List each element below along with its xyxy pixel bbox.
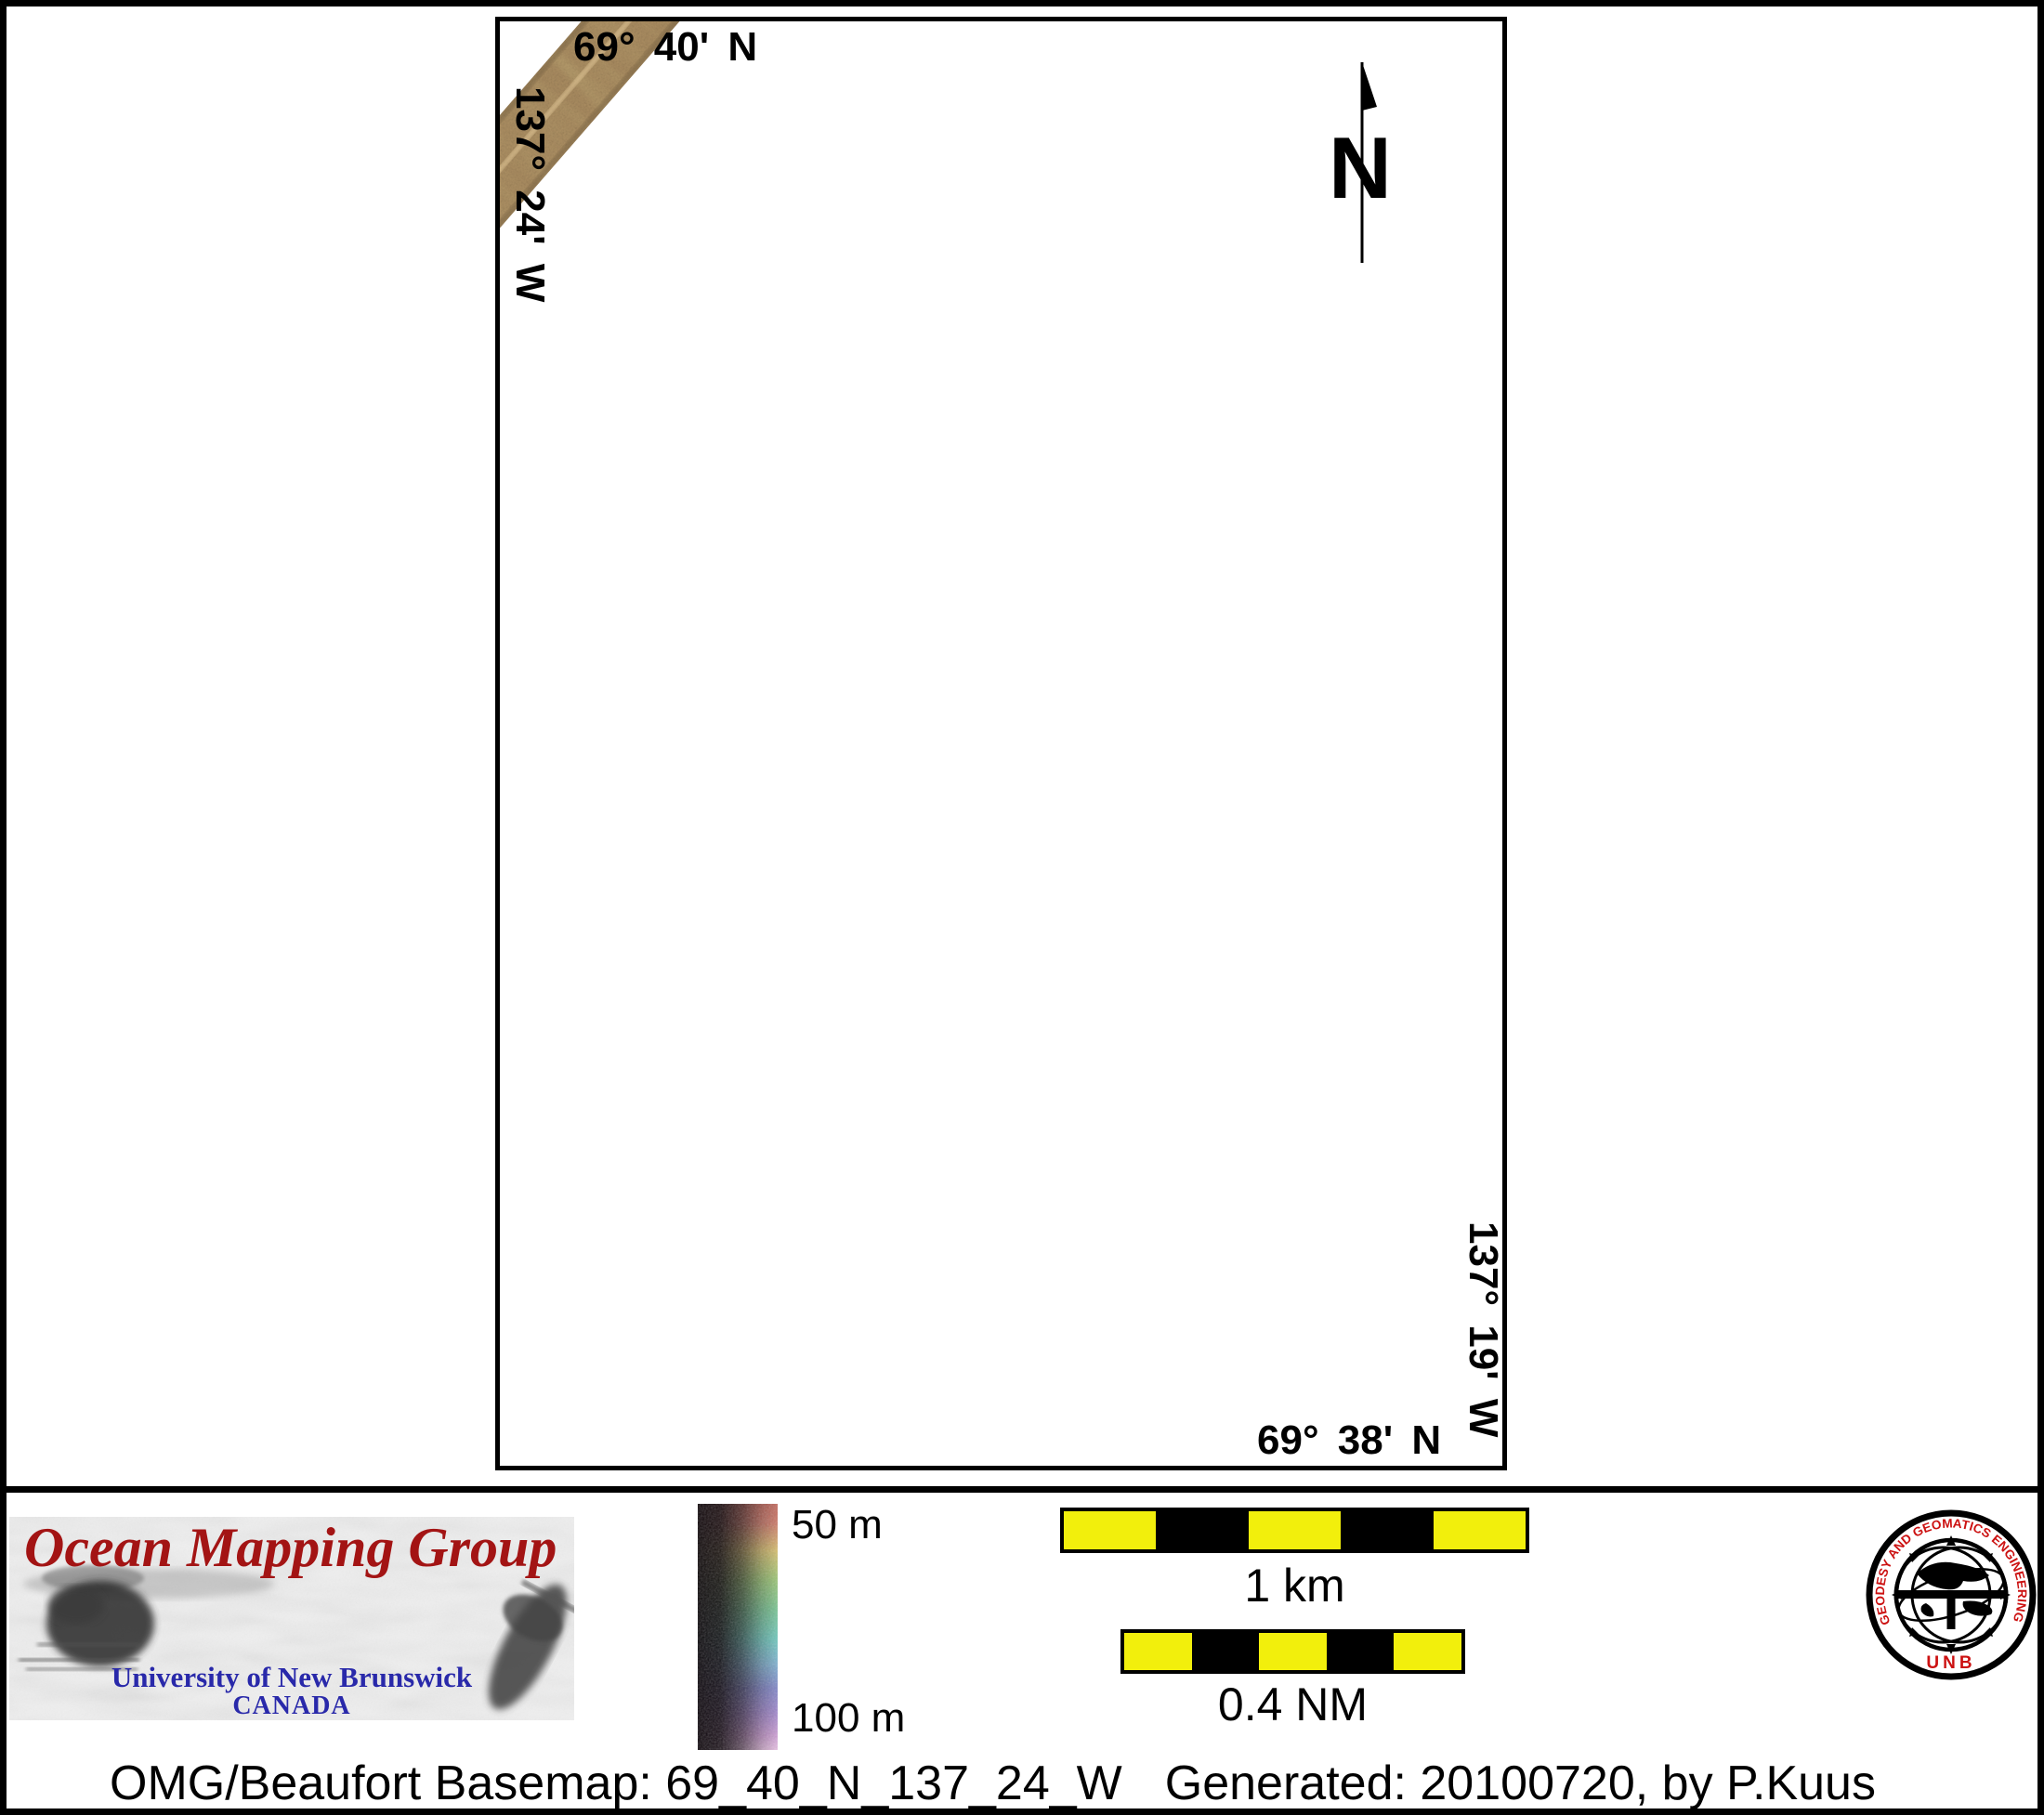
scalebar-segment xyxy=(1259,1633,1327,1670)
omg-logo-title: Ocean Mapping Group xyxy=(24,1517,574,1578)
scalebar-km-label: 1 km xyxy=(1060,1562,1529,1609)
legend-separator-line xyxy=(0,1486,2044,1493)
depth-label-shallow: 50 m xyxy=(792,1505,883,1546)
scalebar-segment xyxy=(1156,1511,1248,1549)
scalebar-segment xyxy=(1064,1511,1156,1549)
scalebar-segment xyxy=(1249,1511,1341,1549)
omg-logo-country: CANADA xyxy=(9,1691,574,1720)
depth-colorbar xyxy=(698,1504,778,1750)
north-arrow: N xyxy=(1299,54,1429,277)
seal-unb-text: UNB xyxy=(1926,1653,1975,1673)
scalebar-segment xyxy=(1394,1633,1461,1670)
map-frame: 69° 40' N 137° 24' W 137° 19' W 69° 38' … xyxy=(495,17,1507,1470)
graticule-label-bottom: 69° 38' N xyxy=(1257,1418,1441,1463)
scalebar-segment xyxy=(1327,1633,1395,1670)
caption-generated: Generated: 20100720, by P.Kuus xyxy=(1165,1756,1876,1811)
caption-line: OMG/Beaufort Basemap: 69_40_N_137_24_W G… xyxy=(110,1756,1876,1811)
depth-label-deep: 100 m xyxy=(792,1698,905,1739)
scalebar-km xyxy=(1060,1508,1529,1553)
graticule-label-top: 69° 40' N xyxy=(573,25,757,70)
scalebar-segment xyxy=(1124,1633,1192,1670)
scalebar-segment xyxy=(1434,1511,1526,1549)
scalebar-segment xyxy=(1192,1633,1260,1670)
scalebar-nm-label: 0.4 NM xyxy=(1120,1681,1465,1728)
seal-globe-details xyxy=(1892,1535,2011,1654)
graticule-label-right: 137° 19' W xyxy=(1461,1221,1505,1437)
caption-basemap-id: OMG/Beaufort Basemap: 69_40_N_137_24_W xyxy=(110,1756,1122,1811)
depth-colorbar-dither xyxy=(698,1504,778,1750)
graticule-label-left: 137° 24' W xyxy=(507,86,552,302)
unb-seal: GEODESY AND GEOMATICS ENGINEERING UNB xyxy=(1863,1507,2039,1683)
north-arrow-label: N xyxy=(1329,119,1392,216)
north-arrow-flag xyxy=(1362,62,1377,111)
omg-logo: Ocean Mapping Group University of New Br… xyxy=(9,1517,574,1720)
scalebar-nm xyxy=(1120,1629,1465,1674)
basemap-sheet: 69° 40' N 137° 24' W 137° 19' W 69° 38' … xyxy=(0,0,2044,1815)
omg-logo-university: University of New Brunswick xyxy=(9,1661,574,1694)
scalebar-segment xyxy=(1341,1511,1433,1549)
